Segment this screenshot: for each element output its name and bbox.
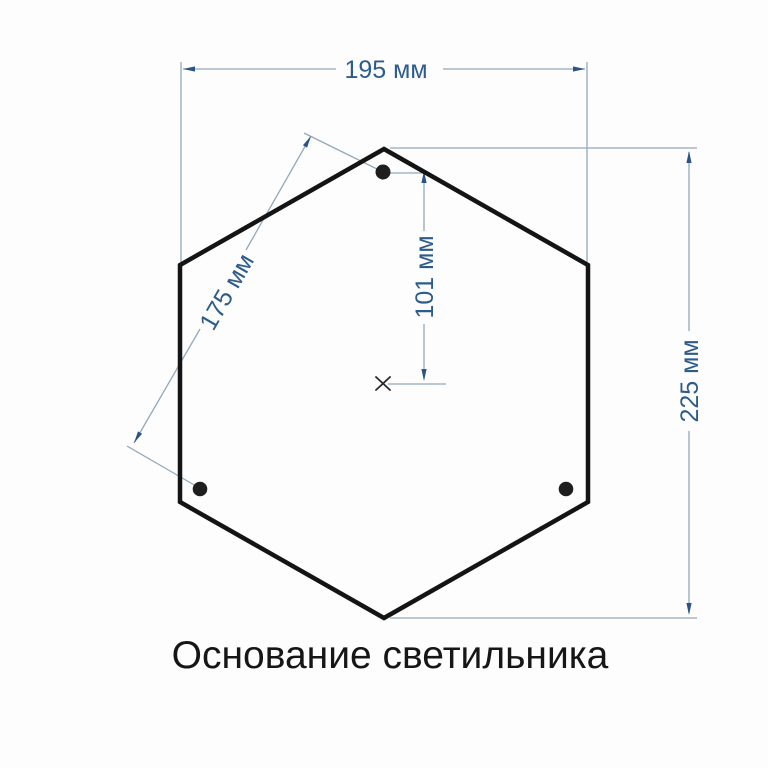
hole-to-center-dimension-label: 101 мм [411,235,439,318]
center-mark [376,377,390,390]
height-arrow-top [686,151,691,163]
hole-spacing-dimension-label: 175 мм [194,249,260,335]
width-arrow-right [573,66,585,71]
dimension-labels: 195 мм 225 мм 101 мм 175 мм [194,56,704,423]
dimension-lines [127,62,697,618]
diagram-title: Основание светильника [172,634,609,677]
mounting-holes [193,165,574,497]
width-arrow-left [183,66,195,71]
spacing-dim-extension-top [304,133,379,170]
spacing-dim-extension-bottom [127,446,196,486]
dimension-arrowheads [134,66,692,615]
center-arrow-bottom [421,369,426,381]
spacing-dim-line-lower [134,329,200,443]
mounting-hole-top [376,165,391,180]
height-dimension-label: 225 мм [676,339,704,422]
mounting-hole-bottom-left [193,482,208,497]
spacing-dim-line-upper [246,136,311,250]
spacing-arrow-top [303,136,311,148]
lamp-base-drawing-page: 195 мм 225 мм 101 мм 175 мм Основание св… [0,0,768,768]
mounting-hole-bottom-right [559,482,574,497]
lamp-base-diagram: 195 мм 225 мм 101 мм 175 мм Основание св… [0,0,768,768]
spacing-arrow-bottom [134,431,142,443]
width-dimension-label: 195 мм [344,56,427,84]
height-arrow-bottom [686,603,691,615]
